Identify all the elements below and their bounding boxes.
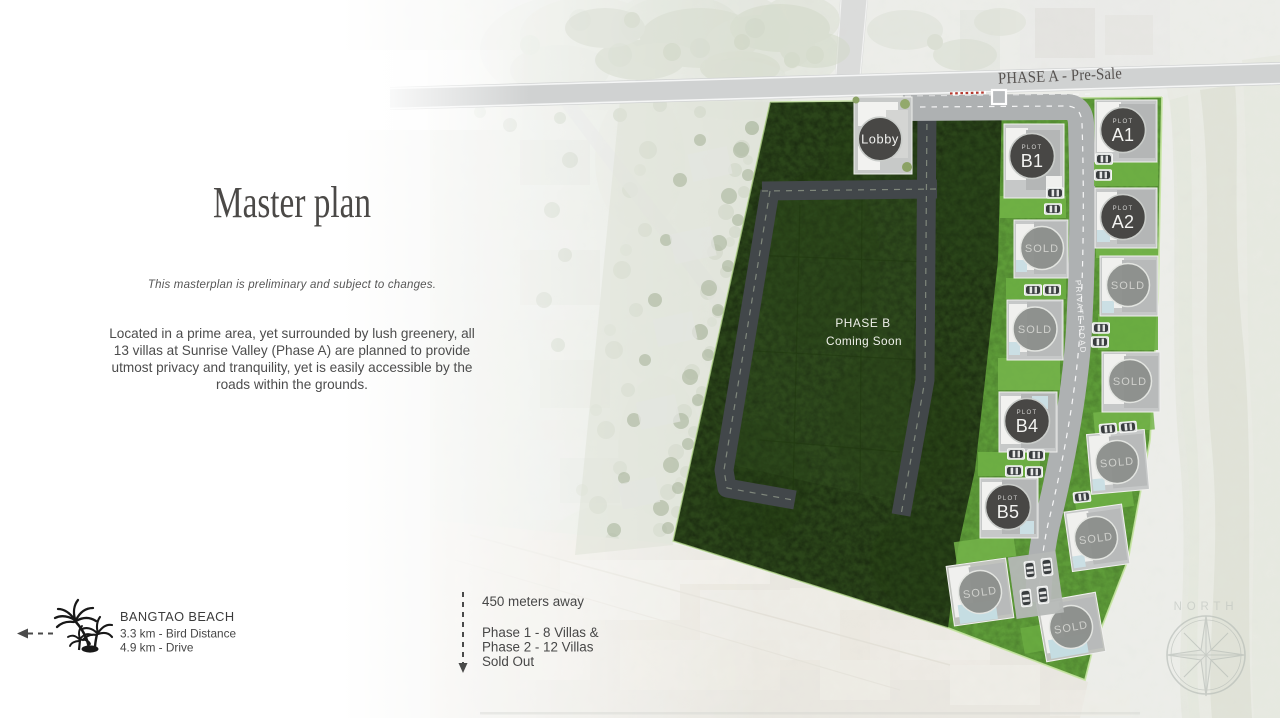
svg-text:4.9 km - Drive: 4.9 km - Drive [120,641,194,655]
svg-text:B4: B4 [1016,416,1039,436]
svg-text:B1: B1 [1021,151,1044,171]
svg-text:A2: A2 [1112,212,1135,232]
svg-text:NORTH: NORTH [1174,601,1239,613]
svg-text:This masterplan is preliminary: This masterplan is preliminary and subje… [148,279,436,291]
svg-text:450 meters away: 450 meters away [482,594,584,609]
svg-text:PHASE B: PHASE B [835,316,890,330]
svg-text:Phase 1 - 8 Villas &: Phase 1 - 8 Villas & [482,625,599,640]
svg-text:13 villas at Sunrise Valley (P: 13 villas at Sunrise Valley (Phase A) ar… [114,343,470,358]
svg-text:Master plan: Master plan [213,178,371,227]
svg-text:Coming Soon: Coming Soon [826,334,902,348]
svg-text:Lobby: Lobby [861,132,899,147]
svg-text:A1: A1 [1112,125,1135,145]
svg-text:SOLD: SOLD [1111,280,1145,292]
svg-text:Located in a prime area, yet s: Located in a prime area, yet surrounded … [109,326,474,341]
svg-text:Phase 2 - 12 Villas: Phase 2 - 12 Villas [482,640,594,655]
svg-text:SOLD: SOLD [1025,243,1059,255]
svg-text:Sold Out: Sold Out [482,654,534,669]
svg-text:utmost privacy and tranquility: utmost privacy and tranquility, yet is e… [112,360,473,375]
svg-text:SOLD: SOLD [1018,324,1052,336]
svg-text:BANGTAO BEACH: BANGTAO BEACH [120,609,234,624]
svg-text:3.3 km - Bird Distance: 3.3 km - Bird Distance [120,627,236,641]
svg-text:SOLD: SOLD [1113,376,1147,388]
svg-text:roads within the grounds.: roads within the grounds. [216,377,368,392]
svg-text:B5: B5 [997,502,1020,522]
